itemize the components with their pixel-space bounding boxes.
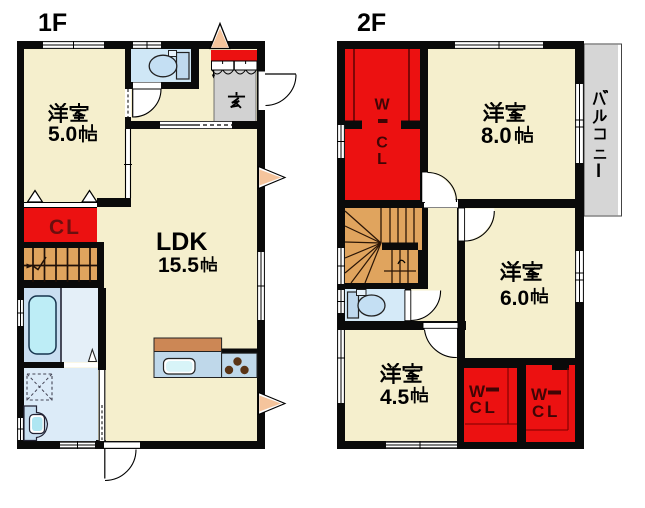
svg-text:C: C <box>376 135 388 152</box>
svg-text:5.0: 5.0 <box>48 123 77 146</box>
svg-text:L: L <box>485 398 495 417</box>
svg-text:1F: 1F <box>38 9 67 37</box>
svg-text:C: C <box>532 402 544 421</box>
svg-text:C: C <box>470 398 482 417</box>
svg-text:CL: CL <box>49 216 81 239</box>
svg-text:8.0: 8.0 <box>481 123 512 148</box>
svg-text:6.0: 6.0 <box>500 287 529 310</box>
svg-text:W: W <box>374 97 390 114</box>
svg-text:4.5: 4.5 <box>380 386 410 409</box>
svg-text:2F: 2F <box>357 9 386 37</box>
svg-text:L: L <box>547 402 557 421</box>
svg-text:L: L <box>377 151 387 168</box>
svg-text:15.5: 15.5 <box>158 254 199 277</box>
svg-text:LDK: LDK <box>156 228 207 256</box>
